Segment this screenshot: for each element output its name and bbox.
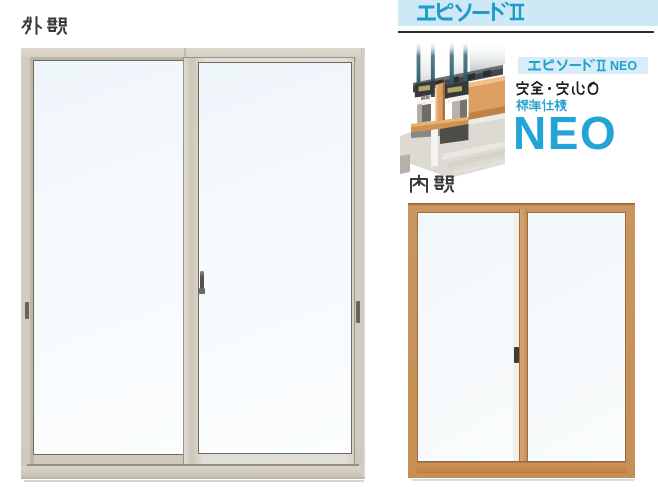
svg-text:NEO: NEO [610, 59, 637, 72]
